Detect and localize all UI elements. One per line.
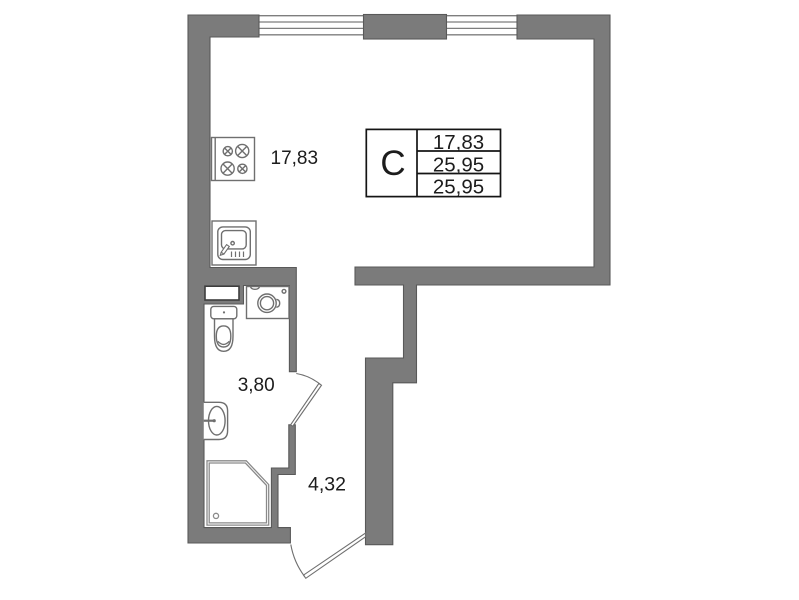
svg-text:4,32: 4,32 xyxy=(308,474,346,496)
svg-text:17,83: 17,83 xyxy=(433,131,484,154)
svg-text:3,80: 3,80 xyxy=(238,375,275,396)
svg-text:25,95: 25,95 xyxy=(433,176,484,199)
svg-text:25,95: 25,95 xyxy=(433,154,484,177)
svg-text:С: С xyxy=(380,144,405,183)
svg-text:17,83: 17,83 xyxy=(271,148,319,169)
